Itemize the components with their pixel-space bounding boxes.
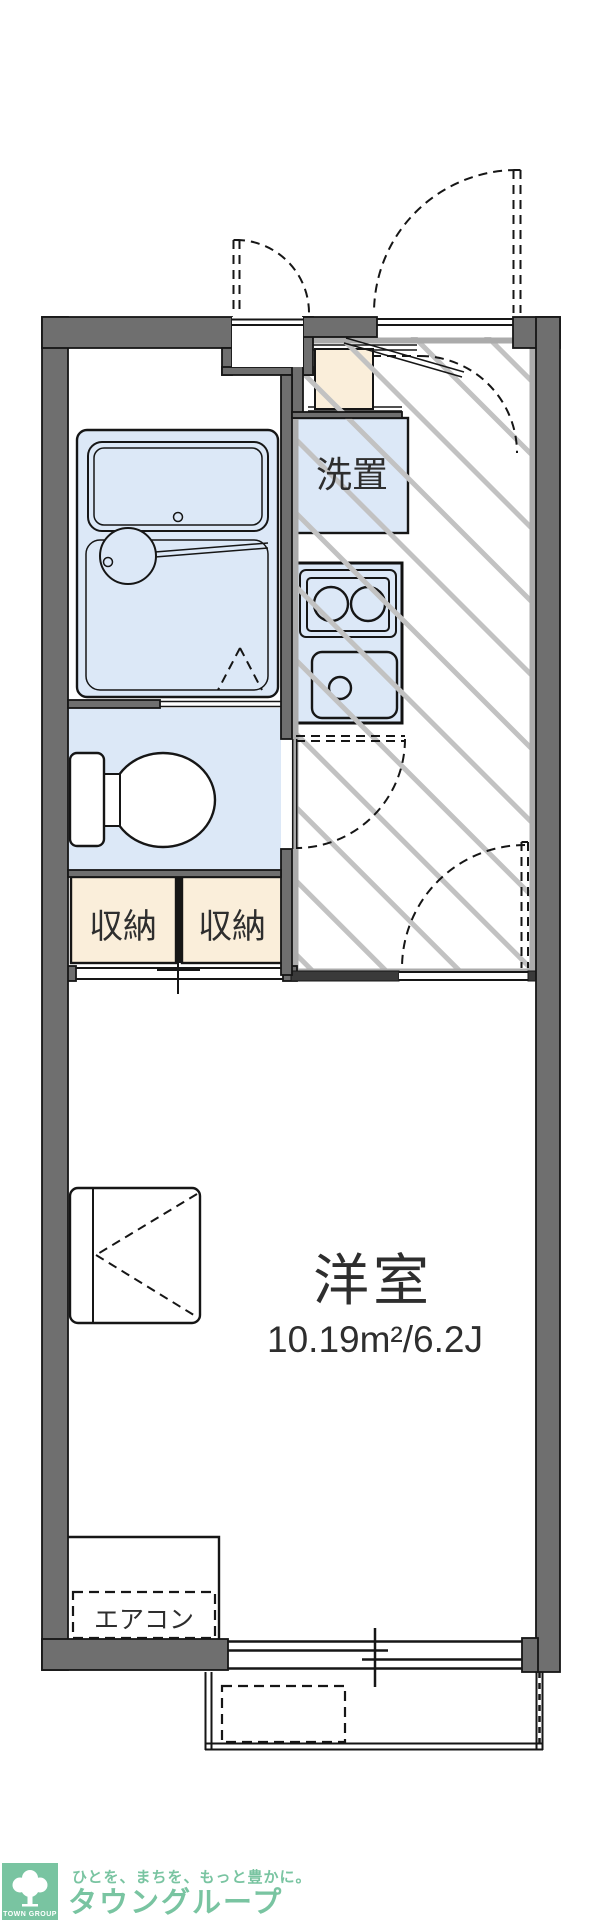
- storage-left-label: 収納: [89, 908, 157, 946]
- washer-label: 洗置: [316, 454, 388, 495]
- wall-top-mid: [303, 317, 377, 337]
- unit-bath: [77, 430, 278, 697]
- aircon-label: エアコン: [94, 1606, 194, 1634]
- air-conditioner: エアコン: [73, 1592, 215, 1638]
- floor-plan-svg: エアコン 洋室 10.19m²/6.2J: [0, 0, 604, 1920]
- room-area: 10.19m²/6.2J: [267, 1319, 483, 1360]
- storage-divider: [176, 877, 182, 963]
- room-label: 洋室: [313, 1249, 433, 1312]
- floor-plan-page: エアコン 洋室 10.19m²/6.2J: [0, 0, 604, 1920]
- wall-bottom-left: [42, 1639, 228, 1670]
- wall-divider-lower: [281, 849, 292, 975]
- toilet-bowl: [111, 753, 215, 847]
- wall-divider-mid: [281, 375, 292, 739]
- footer-logo: TOWN GROUP ひとを、まちを、もっと豊かに。 タウングループ: [2, 1863, 312, 1920]
- footer-tagline: ひとを、まちを、もっと豊かに。: [72, 1868, 312, 1886]
- wall-top-left: [42, 317, 232, 348]
- toilet-tank: [70, 753, 104, 846]
- wall-bath-toilet: [68, 700, 160, 708]
- wall-toilet-storage: [68, 870, 281, 877]
- wall-right: [536, 317, 560, 1672]
- footer-company: タウングループ: [68, 1886, 283, 1919]
- room-divider: [291, 971, 536, 981]
- hatched-floor: [292, 337, 536, 975]
- logo-square-text: TOWN GROUP: [3, 1911, 57, 1918]
- wash-basin: [100, 528, 156, 584]
- storage-right-label: 収納: [198, 908, 266, 946]
- wall-left: [42, 317, 68, 1670]
- toilet-room: [68, 708, 281, 870]
- wall-bottom-right-step: [522, 1638, 538, 1672]
- folding-bed: [70, 1188, 200, 1323]
- wall-washer-divider: [292, 412, 402, 418]
